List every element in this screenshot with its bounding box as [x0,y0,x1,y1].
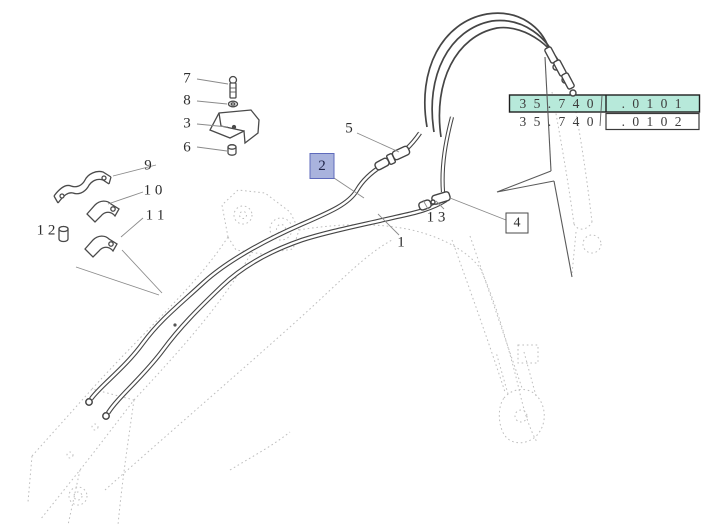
hose-dot [173,323,176,326]
hose-connector [443,117,452,192]
callout-12[interactable]: 1 2 [37,224,56,239]
mounting-hardware [210,77,259,156]
parts-diagram-canvas: 7 8 3 6 9 1 0 1 1 1 2 5 1 1 3 2 4 3 5 . … [0,0,703,525]
callout-8[interactable]: 8 [183,94,191,109]
tube-run-lower [108,200,446,413]
callout-4-boxed[interactable]: 4 [506,213,529,234]
nut-icon [228,145,236,155]
callout-9[interactable]: 9 [144,159,152,174]
double-clamp-icon [54,171,111,203]
single-clamp-icon [85,236,117,257]
part-number-row2-suffix[interactable]: . 0 1 0 2 [606,113,699,130]
hose-end-fittings [544,46,576,96]
bracket-icon [210,110,259,143]
callout-10[interactable]: 1 0 [144,184,163,199]
hose-end-tip [103,413,109,419]
callout-7[interactable]: 7 [183,72,191,87]
washer-icon [229,101,238,107]
callout-11[interactable]: 1 1 [146,209,165,224]
part-number-row1-prefix[interactable]: 3 5 . 7 4 0 [510,95,605,112]
part-number-arrow [497,57,602,277]
hose-end-tip [86,399,92,405]
callout-2-highlighted[interactable]: 2 [310,153,335,179]
callout-1[interactable]: 1 [397,236,405,251]
callout-3[interactable]: 3 [183,117,191,132]
part-number-row1-suffix[interactable]: . 0 1 0 1 [606,95,699,112]
part-number-row2-prefix[interactable]: 3 5 . 7 4 0 [510,113,605,130]
spacer-pin-icon [59,227,68,242]
hose-run-upper [91,133,420,399]
callout-5[interactable]: 5 [345,122,353,137]
single-clamp-icon [87,201,119,222]
callout-13[interactable]: 1 3 [427,211,446,226]
bolt-icon [230,77,237,99]
callout-6[interactable]: 6 [183,141,191,156]
hydraulic-cylinder [496,90,601,443]
diagram-line-art [0,0,703,525]
clamps [54,171,119,257]
